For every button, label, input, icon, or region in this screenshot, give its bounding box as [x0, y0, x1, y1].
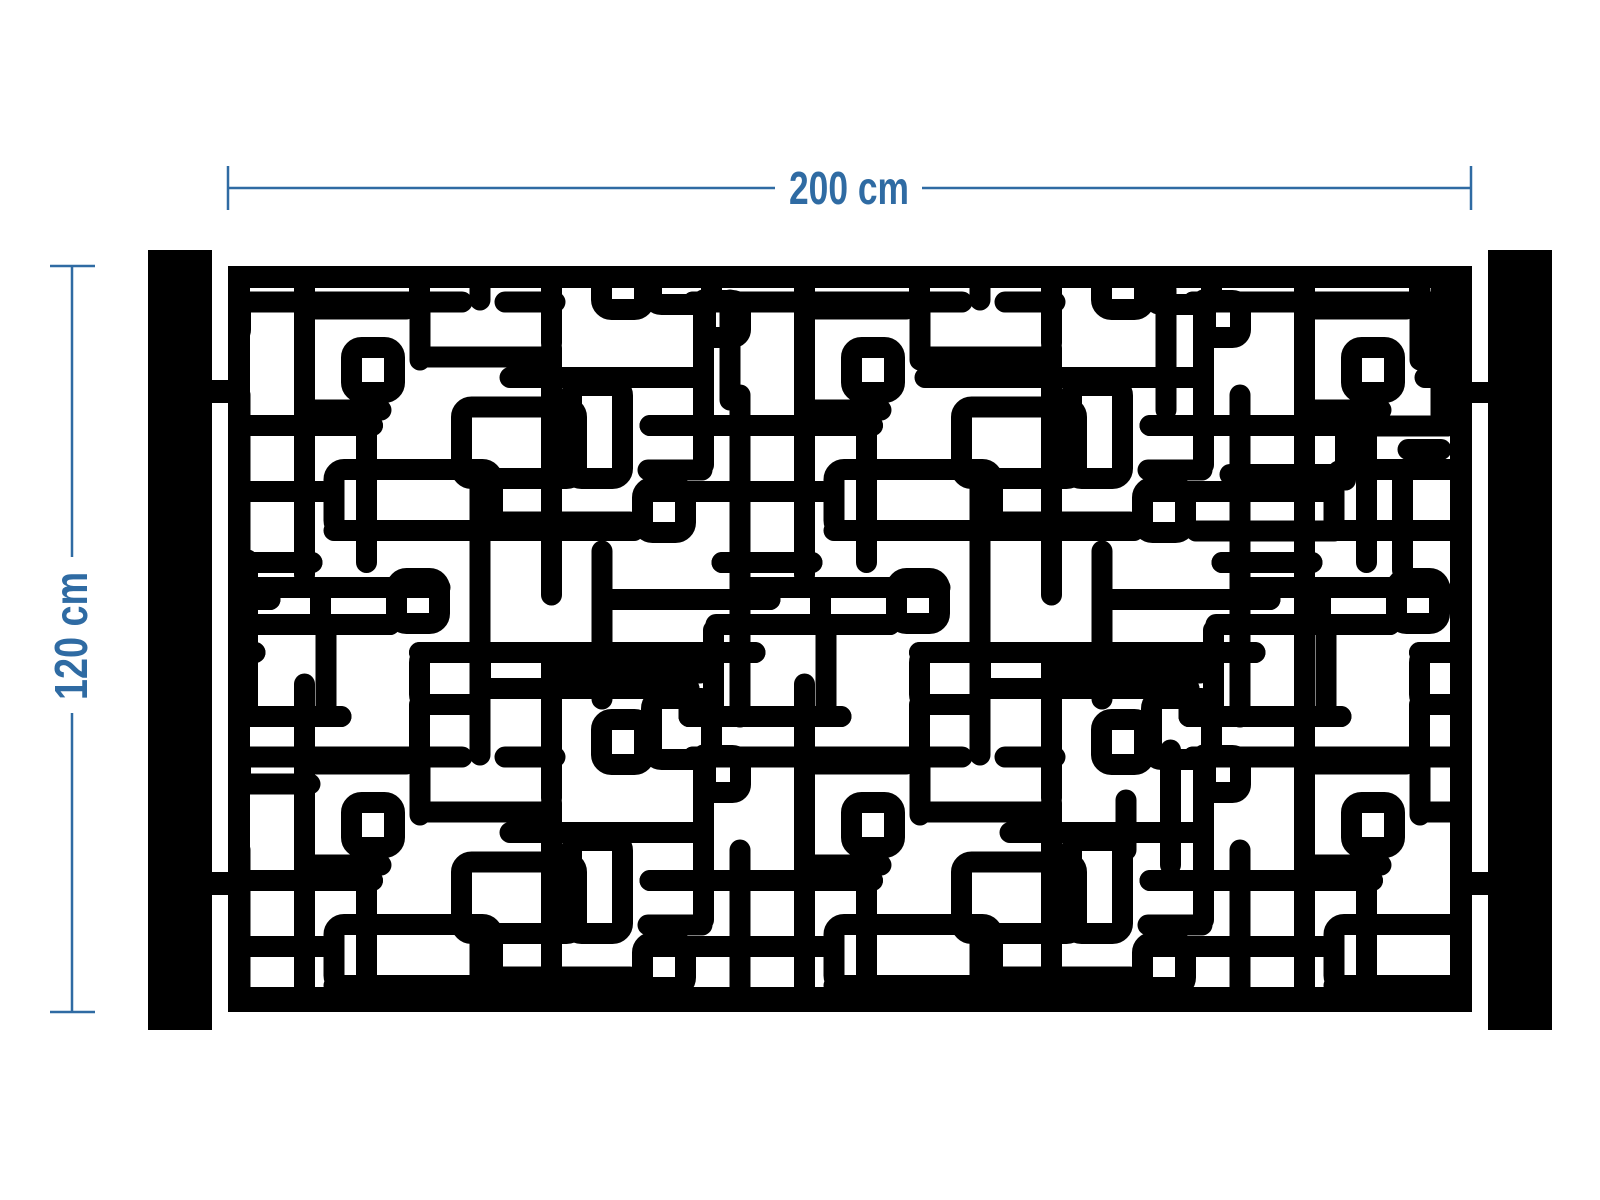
- svg-text:200 cm: 200 cm: [789, 162, 909, 214]
- svg-text:120 cm: 120 cm: [45, 572, 97, 700]
